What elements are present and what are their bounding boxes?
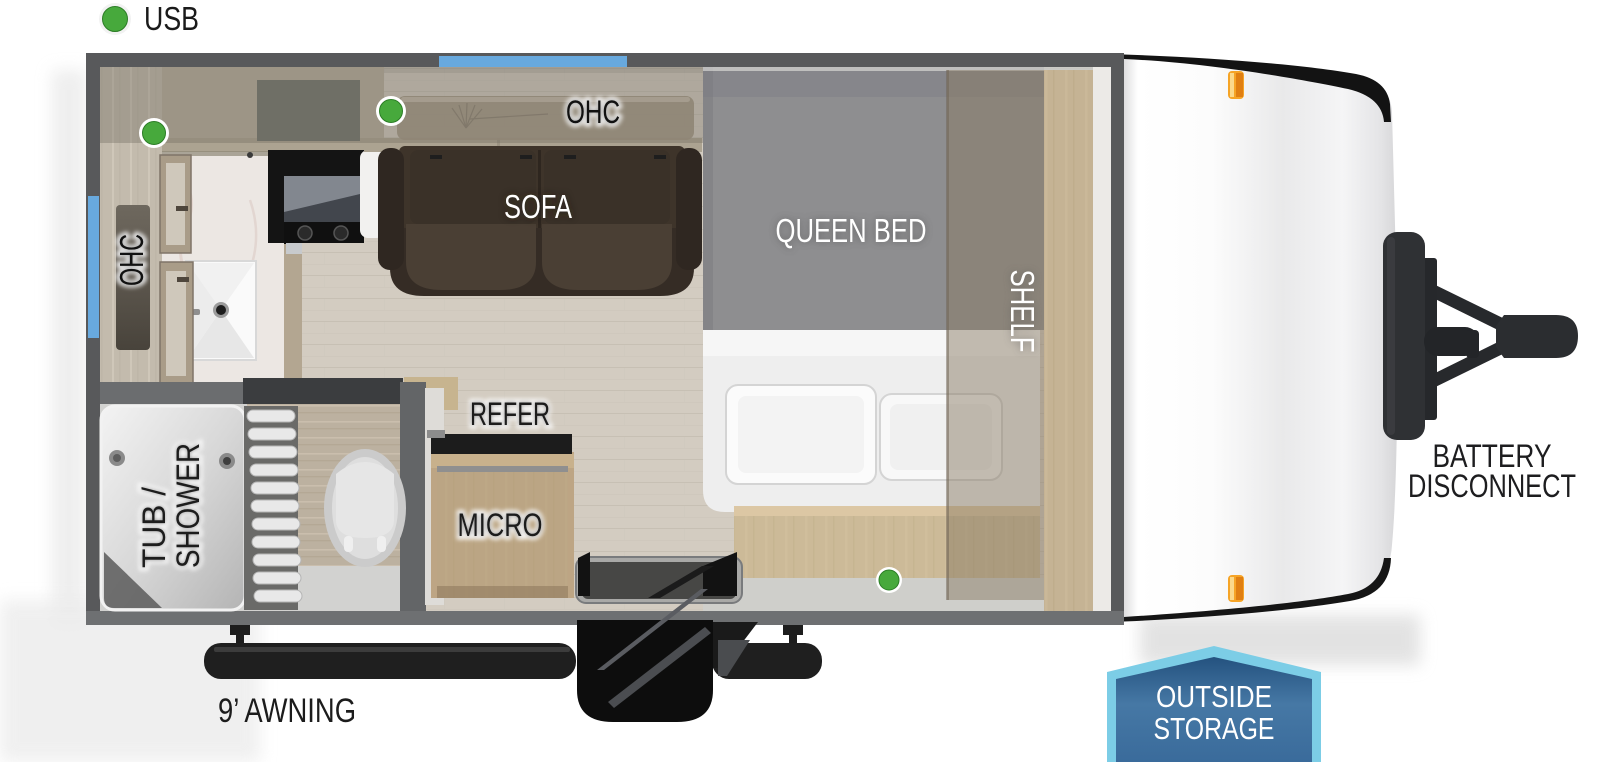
svg-text:OUTSIDE: OUTSIDE <box>1156 679 1272 714</box>
svg-text:QUEEN BED: QUEEN BED <box>776 212 927 249</box>
svg-text:9’ AWNING: 9’ AWNING <box>218 692 356 730</box>
svg-text:SHELF: SHELF <box>1004 270 1041 353</box>
svg-text:OHC: OHC <box>566 94 620 130</box>
svg-text:REFER: REFER <box>470 396 550 432</box>
svg-text:MICRO: MICRO <box>458 507 543 543</box>
svg-text:USB: USB <box>144 0 199 37</box>
svg-text:STORAGE: STORAGE <box>1154 711 1275 746</box>
svg-text:SOFA: SOFA <box>504 188 572 225</box>
svg-text:TUB /: TUB / <box>136 487 172 568</box>
svg-text:SHOWER: SHOWER <box>170 443 206 568</box>
svg-text:OHC: OHC <box>113 234 150 286</box>
svg-text:DISCONNECT: DISCONNECT <box>1408 468 1576 504</box>
